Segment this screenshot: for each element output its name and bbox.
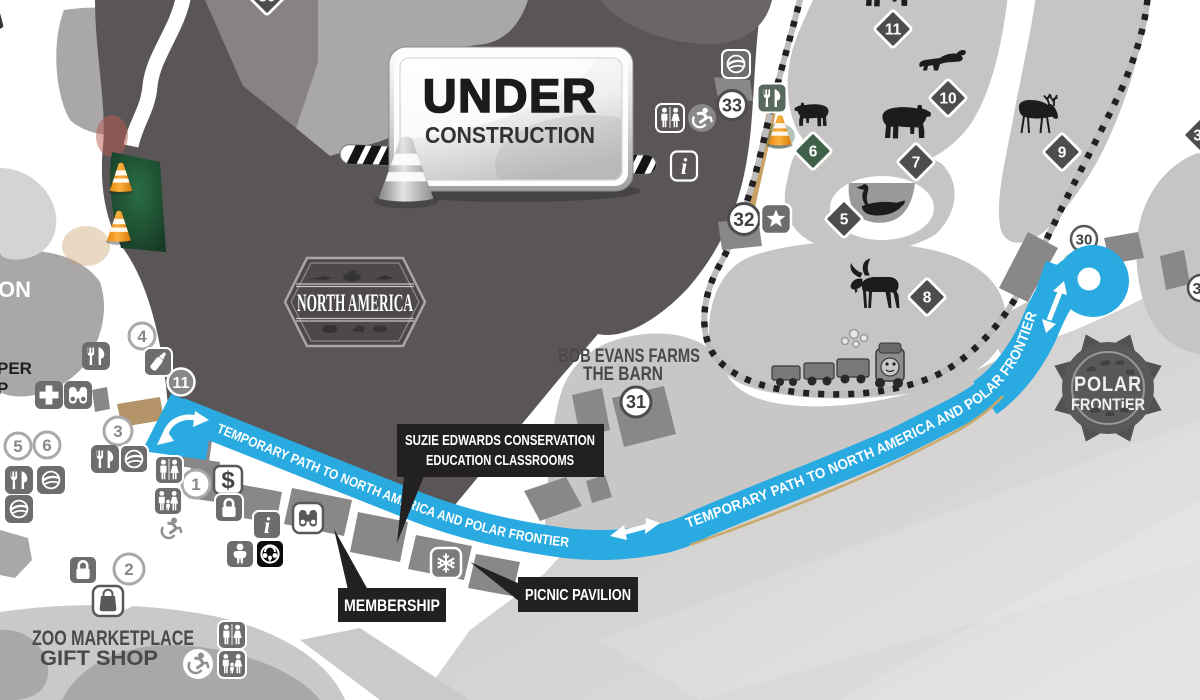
svg-text:7: 7 — [912, 155, 921, 172]
svg-text:31: 31 — [626, 392, 646, 412]
svg-text:11: 11 — [173, 375, 190, 392]
svg-text:10: 10 — [939, 91, 956, 108]
svg-text:2: 2 — [124, 560, 133, 579]
svg-text:5: 5 — [13, 437, 22, 456]
svg-text:NORTH AMERICA: NORTH AMERICA — [297, 290, 413, 317]
svg-text:MEMBERSHIP: MEMBERSHIP — [344, 596, 440, 615]
svg-text:PER: PER — [0, 359, 32, 378]
svg-text:5: 5 — [840, 212, 849, 229]
svg-text:PICNIC PAVILION: PICNIC PAVILION — [525, 587, 631, 604]
svg-text:SUZIE EDWARDS CONSERVATION: SUZIE EDWARDS CONSERVATION — [405, 432, 595, 449]
svg-text:THE BARN: THE BARN — [583, 364, 663, 385]
svg-text:35: 35 — [1193, 128, 1200, 145]
svg-text:9: 9 — [1058, 145, 1067, 162]
svg-text:EDUCATION CLASSROOMS: EDUCATION CLASSROOMS — [426, 452, 574, 469]
svg-text:6: 6 — [809, 144, 818, 161]
svg-text:33: 33 — [722, 96, 742, 116]
svg-text:POLAR: POLAR — [1074, 373, 1142, 396]
svg-text:P: P — [0, 379, 8, 398]
svg-text:8: 8 — [923, 290, 932, 307]
svg-text:GIFT SHOP: GIFT SHOP — [40, 647, 158, 670]
svg-text:50: 50 — [258, 0, 275, 6]
svg-text:FRONTiER: FRONTiER — [1071, 396, 1145, 414]
svg-text:3: 3 — [1193, 281, 1200, 298]
svg-text:UNDER: UNDER — [423, 69, 598, 122]
svg-text:ON: ON — [0, 277, 31, 302]
svg-text:$: $ — [221, 467, 235, 494]
svg-text:CONSTRUCTION: CONSTRUCTION — [425, 122, 595, 148]
svg-text:4: 4 — [137, 327, 147, 346]
svg-text:6: 6 — [42, 436, 51, 455]
svg-text:11: 11 — [885, 22, 902, 39]
svg-text:1: 1 — [191, 475, 200, 494]
svg-text:3: 3 — [113, 422, 122, 441]
svg-text:32: 32 — [733, 210, 754, 231]
